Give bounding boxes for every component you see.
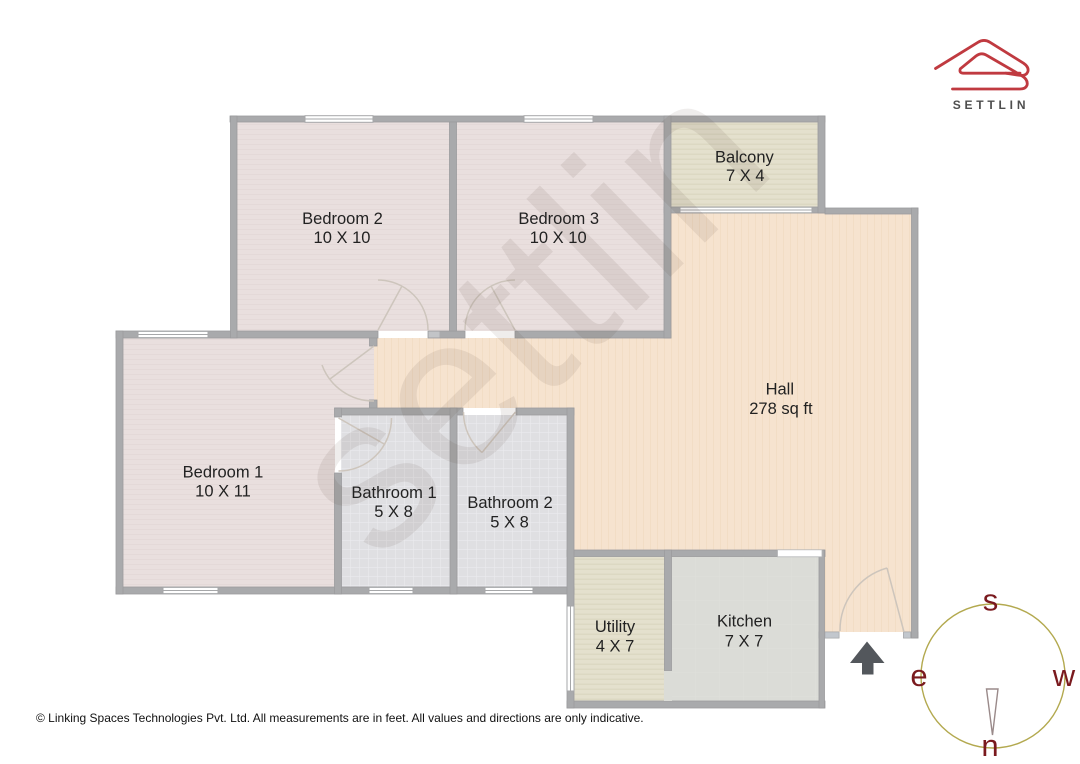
- svg-text:© Linking Spaces Technologies: © Linking Spaces Technologies Pvt. Ltd. …: [36, 711, 644, 725]
- svg-text:Bathroom 2: Bathroom 2: [467, 494, 552, 512]
- svg-text:7 X 7: 7 X 7: [725, 632, 764, 650]
- svg-text:10 X 10: 10 X 10: [314, 229, 371, 247]
- svg-text:278 sq ft: 278 sq ft: [749, 400, 813, 418]
- svg-text:10 X 10: 10 X 10: [530, 229, 587, 247]
- svg-text:Utility: Utility: [595, 618, 636, 636]
- svg-text:Bedroom 3: Bedroom 3: [518, 210, 599, 228]
- svg-text:Bathroom 1: Bathroom 1: [351, 484, 436, 502]
- svg-text:4 X 7: 4 X 7: [596, 638, 635, 656]
- svg-text:SETTLIN: SETTLIN: [953, 98, 1030, 112]
- svg-text:n: n: [981, 728, 998, 763]
- svg-text:5 X 8: 5 X 8: [374, 503, 413, 521]
- svg-text:10 X 11: 10 X 11: [195, 483, 251, 501]
- svg-text:Kitchen: Kitchen: [717, 613, 772, 631]
- svg-text:Balcony: Balcony: [715, 148, 774, 166]
- svg-text:w: w: [1052, 658, 1076, 693]
- svg-text:5 X 8: 5 X 8: [490, 513, 529, 531]
- svg-text:7 X 4: 7 X 4: [726, 167, 765, 185]
- svg-text:Bedroom 1: Bedroom 1: [183, 463, 264, 481]
- svg-text:s: s: [983, 583, 999, 618]
- svg-text:Hall: Hall: [766, 381, 794, 399]
- svg-text:Bedroom 2: Bedroom 2: [302, 210, 383, 228]
- svg-text:e: e: [910, 658, 927, 693]
